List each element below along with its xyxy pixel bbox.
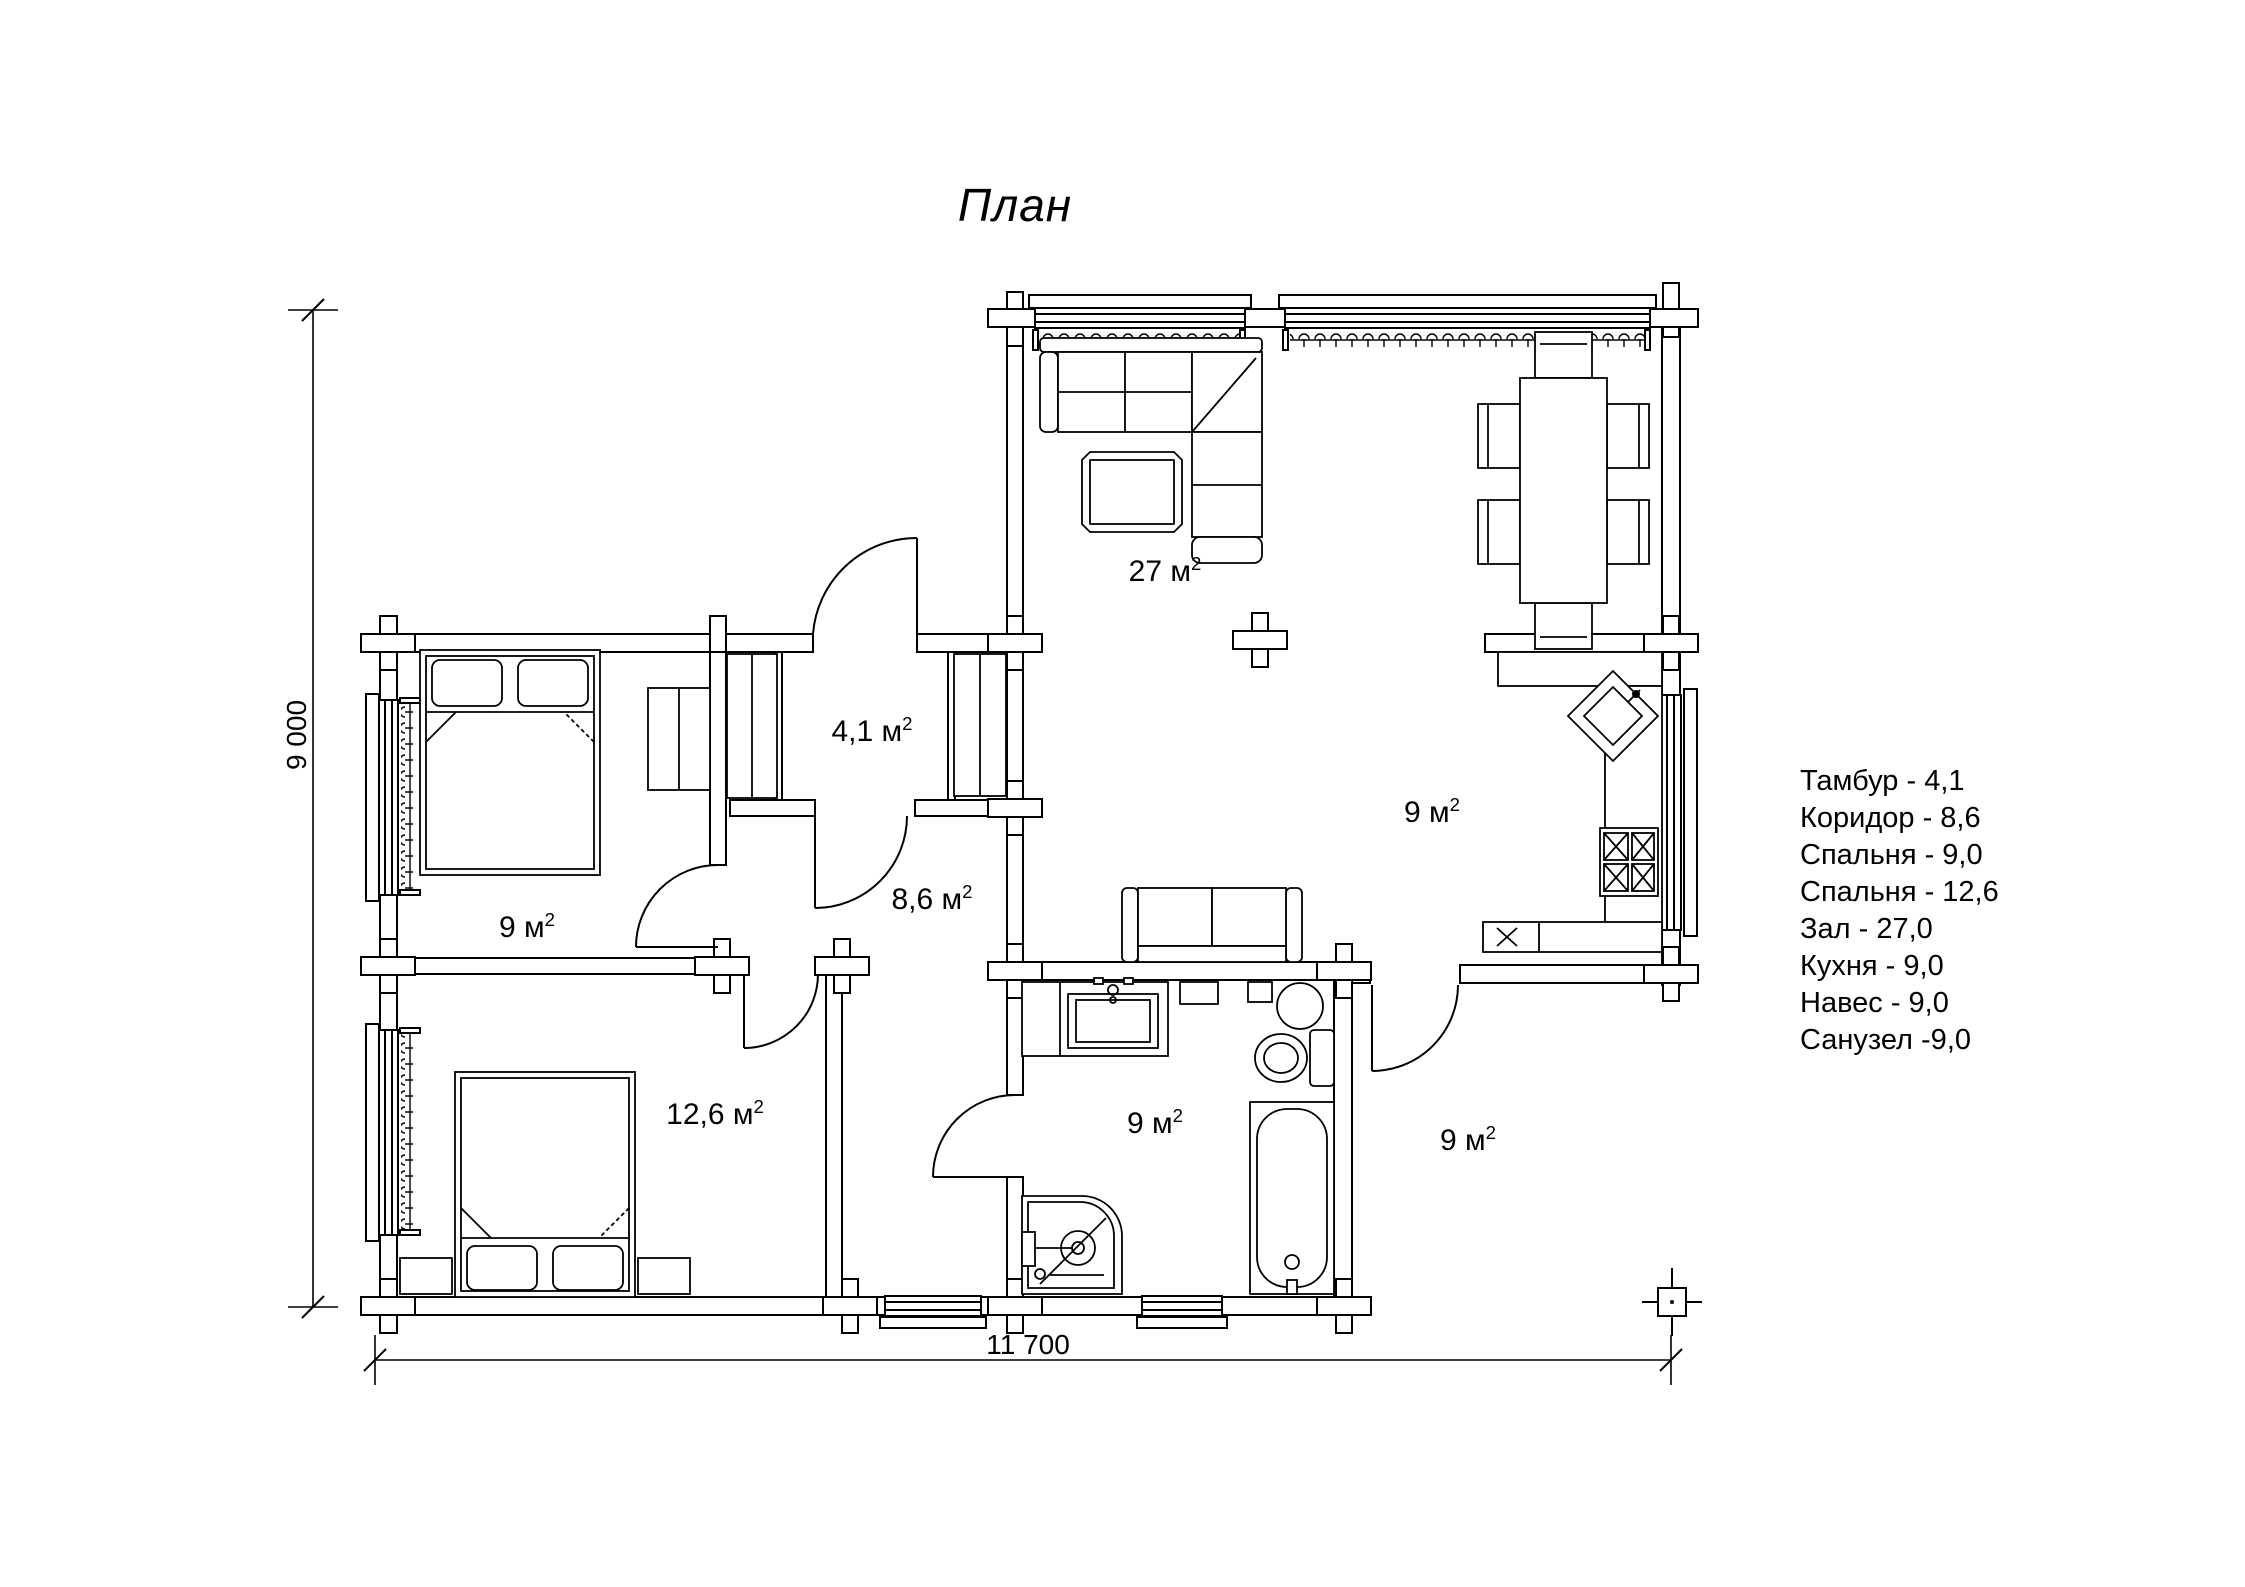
wall-bathroom-right — [1334, 962, 1352, 1315]
door-bedroom1 — [636, 865, 718, 947]
floor-plan-page: План 27 м2 4,1 м2 8,6 м2 9 м2 12,6 м2 9 … — [0, 0, 2245, 1587]
wall-bedroom2-east — [826, 958, 842, 1315]
toilet-symbol — [1255, 1030, 1334, 1086]
closet-symbol-right — [954, 654, 1006, 796]
page-title: План — [958, 178, 1072, 232]
loveseat-symbol — [1122, 888, 1302, 962]
shelf-symbol — [1180, 982, 1272, 1004]
wall-bedrooms-divider — [380, 958, 740, 974]
room-label-bathroom: 9 м2 — [1127, 1105, 1183, 1141]
room-label-kitchen: 9 м2 — [1404, 794, 1460, 830]
room-label-hall: 27 м2 — [1129, 553, 1202, 589]
wall-bathroom-top — [1007, 962, 1352, 980]
door-bedroom2 — [744, 974, 818, 1048]
window-bedroom2 — [366, 1024, 421, 1241]
shower-cabin-symbol — [1022, 1196, 1122, 1294]
window-hall-2 — [1279, 295, 1656, 351]
window-bedroom1 — [366, 694, 421, 901]
room-label-corridor: 8,6 м2 — [891, 881, 972, 917]
room-label-canopy: 9 м2 — [1440, 1122, 1496, 1158]
wall-vestibule-bottom-left — [730, 800, 815, 816]
room-legend: Тамбур - 4,1 Коридор - 8,6 Спальня - 9,0… — [1800, 763, 1999, 1059]
dimension-label-width: 11 700 — [986, 1329, 1070, 1361]
nightstand-symbol-left — [400, 1258, 452, 1294]
legend-item: Навес - 9,0 — [1800, 985, 1999, 1022]
dimension-label-height: 9 000 — [281, 700, 313, 770]
double-bed-symbol-bedroom2 — [455, 1072, 635, 1297]
stove-symbol — [1600, 828, 1658, 896]
legend-item: Санузел -9,0 — [1800, 1022, 1999, 1059]
legend-item: Спальня - 9,0 — [1800, 837, 1999, 874]
free-log-post — [1233, 613, 1287, 667]
bathtub-symbol — [1250, 1102, 1334, 1294]
washbasin-symbol — [1022, 978, 1168, 1056]
legend-item: Спальня - 12,6 — [1800, 874, 1999, 911]
closet-symbol-left — [727, 654, 777, 798]
room-label-vestibule: 4,1 м2 — [831, 713, 912, 749]
dining-table-symbol — [1478, 332, 1649, 649]
wardrobe-symbol-bedroom1 — [648, 688, 710, 790]
legend-item: Зал - 27,0 — [1800, 911, 1999, 948]
dimension-line-vertical — [288, 299, 338, 1318]
coffee-table-symbol — [1082, 452, 1182, 532]
window-corridor-bottom — [880, 1296, 986, 1328]
door-kitchen-to-canopy — [1372, 985, 1458, 1071]
wall-bedroom1-east — [710, 652, 726, 865]
nightstand-symbol-right — [638, 1258, 690, 1294]
door-bathroom — [933, 1095, 1015, 1177]
room-label-bedroom2: 12,6 м2 — [666, 1096, 764, 1132]
legend-item: Коридор - 8,6 — [1800, 800, 1999, 837]
washing-machine-symbol — [1277, 983, 1323, 1029]
window-bathroom-bottom — [1137, 1296, 1227, 1328]
canopy-post-symbol — [1642, 1268, 1702, 1336]
door-entrance — [813, 538, 917, 634]
legend-item: Кухня - 9,0 — [1800, 948, 1999, 985]
double-bed-symbol-bedroom1 — [420, 650, 600, 875]
legend-item: Тамбур - 4,1 — [1800, 763, 1999, 800]
room-label-bedroom1: 9 м2 — [499, 909, 555, 945]
